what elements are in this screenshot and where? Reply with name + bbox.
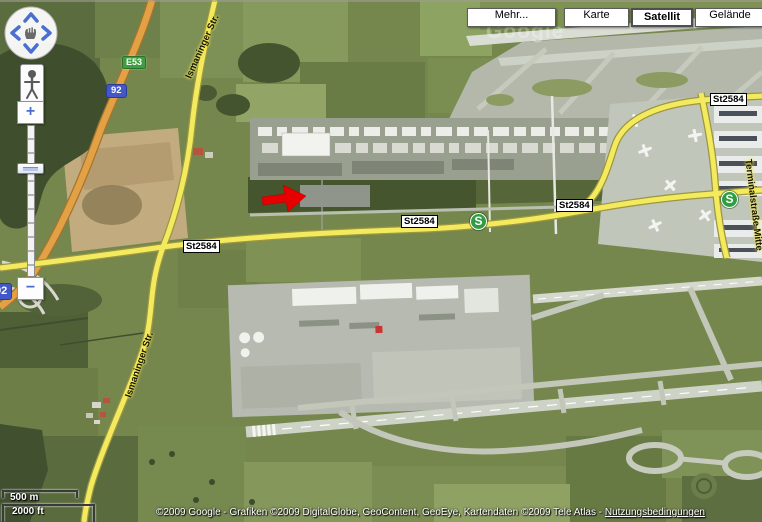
google-maps-viewport: Google E53 92 92 St2584 St2584 St2584 St…	[0, 0, 762, 522]
terminal-apron	[598, 92, 762, 262]
zoom-in-button[interactable]: +	[17, 101, 44, 124]
zoom-out-button[interactable]: −	[17, 277, 44, 300]
attribution-bar: ©2009 Google - Grafiken ©2009 DigitalGlo…	[156, 507, 705, 518]
route-badge-st2584-east: St2584	[556, 199, 593, 212]
satellite-imagery	[0, 0, 762, 522]
satellit-button[interactable]: Satellit	[631, 8, 693, 27]
map-canvas[interactable]: Google E53 92 92 St2584 St2584 St2584 St…	[0, 0, 762, 522]
mehr-button[interactable]: Mehr...	[467, 8, 556, 27]
window-edge	[0, 0, 762, 2]
route-badge-e53: E53	[122, 56, 146, 69]
route-badge-st2584-west: St2584	[183, 240, 220, 253]
pegman-icon	[25, 70, 39, 98]
route-badge-92: 92	[106, 84, 127, 98]
pan-control[interactable]	[3, 5, 59, 61]
scale-label-imperial: 2000 ft	[12, 506, 44, 517]
zoom-slider-track[interactable]	[27, 125, 35, 277]
sbahn-station-icon-terminal: S	[721, 191, 738, 208]
terms-of-use-link[interactable]: Nutzungsbedingungen	[605, 507, 705, 518]
route-badge-92-left: 92	[0, 283, 12, 300]
zoom-slider-handle[interactable]	[17, 163, 44, 174]
pegman-streetview-button[interactable]	[20, 64, 44, 104]
route-badge-st2584-center: St2584	[401, 215, 438, 228]
copyright-text: ©2009 Google - Grafiken ©2009 DigitalGlo…	[156, 507, 605, 518]
scale-label-metric: 500 m	[10, 492, 38, 503]
route-badge-st2584-north: St2584	[710, 93, 747, 106]
karte-button[interactable]: Karte	[564, 8, 629, 27]
gelaende-button[interactable]: Gelände	[695, 8, 762, 27]
sbahn-station-icon-besucherpark: S	[470, 213, 487, 230]
